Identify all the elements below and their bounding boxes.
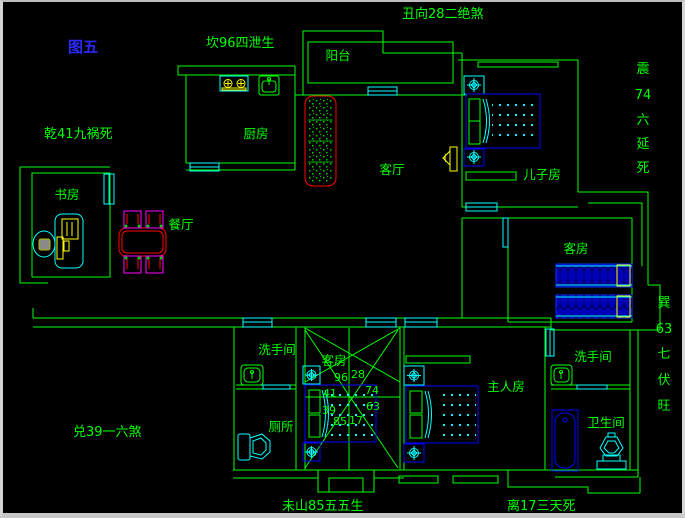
svg-text:74: 74 bbox=[635, 88, 652, 103]
figure-label: 图五 bbox=[68, 38, 98, 56]
svg-text:震: 震 bbox=[636, 62, 649, 77]
svg-text:63: 63 bbox=[366, 400, 380, 413]
annotation-north: 坎96四泄生 bbox=[206, 36, 275, 51]
svg-text:死: 死 bbox=[636, 161, 649, 176]
room-label-study: 书房 bbox=[54, 187, 79, 202]
svg-text:伏: 伏 bbox=[657, 373, 670, 388]
annotation-top: 丑向28二绝煞 bbox=[402, 6, 484, 22]
cad-window-frame: 图五 坎96四泄生 丑向28二绝煞 乾41九祸死 兑39一六煞 未山85五五生 … bbox=[0, 0, 685, 518]
room-label-dining: 餐厅 bbox=[168, 217, 193, 232]
svg-text:巽: 巽 bbox=[657, 296, 670, 311]
svg-text:85: 85 bbox=[333, 415, 347, 428]
svg-text:17: 17 bbox=[349, 414, 363, 427]
room-label-master: 主人房 bbox=[487, 379, 525, 394]
twin-bed-icon bbox=[556, 295, 632, 318]
room-label-living: 客厅 bbox=[379, 162, 404, 177]
svg-text:74: 74 bbox=[365, 384, 379, 397]
annotation-south-left: 未山85五五生 bbox=[282, 499, 364, 513]
annotation-west: 兑39一六煞 bbox=[73, 425, 142, 440]
svg-text:41: 41 bbox=[323, 387, 337, 400]
svg-text:六: 六 bbox=[636, 113, 649, 128]
room-label-bathroom: 卫生间 bbox=[587, 415, 625, 430]
svg-text:96: 96 bbox=[334, 371, 348, 384]
svg-text:63: 63 bbox=[656, 322, 673, 337]
svg-text:延: 延 bbox=[636, 137, 649, 152]
room-label-washroom-west: 洗手间 bbox=[258, 342, 296, 357]
room-label-washroom-east: 洗手间 bbox=[574, 349, 612, 364]
svg-text:旺: 旺 bbox=[657, 399, 670, 414]
svg-text:28: 28 bbox=[351, 368, 365, 381]
svg-text:七: 七 bbox=[657, 347, 670, 362]
twin-bed-icon bbox=[556, 264, 632, 287]
room-label-son: 儿子房 bbox=[523, 167, 561, 182]
annotation-south-right: 离17三天死 bbox=[507, 498, 576, 513]
room-label-guest-east: 客房 bbox=[563, 241, 588, 256]
room-label-kitchen: 厨房 bbox=[243, 126, 268, 141]
annotation-northwest: 乾41九祸死 bbox=[44, 127, 113, 142]
room-label-balcony: 阳台 bbox=[325, 48, 350, 63]
floorplan-canvas[interactable]: 图五 坎96四泄生 丑向28二绝煞 乾41九祸死 兑39一六煞 未山85五五生 … bbox=[3, 2, 680, 513]
room-label-guest-south: 客房 bbox=[321, 353, 346, 368]
sofa-icon bbox=[305, 96, 336, 186]
room-label-toilet: 厕所 bbox=[268, 419, 293, 434]
